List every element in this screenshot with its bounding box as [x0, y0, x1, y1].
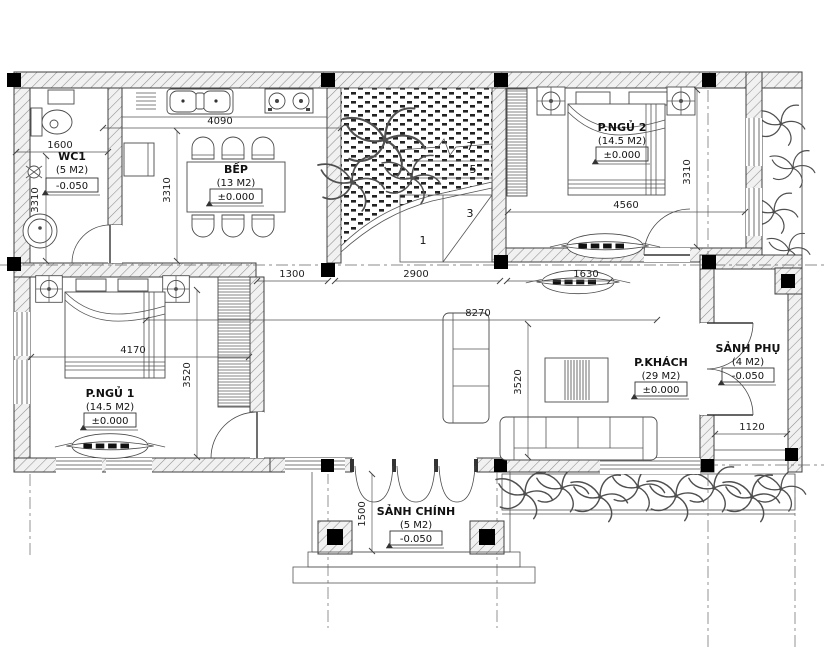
- dim-stairwell-width: 2900: [403, 269, 428, 280]
- pillow: [118, 279, 148, 291]
- nightstand-lamp-symbol: [36, 276, 63, 303]
- window-bedroom1-bottom-2: [106, 458, 152, 474]
- room-level: -0.050: [732, 371, 764, 382]
- side-porch-right-wall: [788, 269, 802, 472]
- living-room-furniture: [443, 270, 657, 460]
- side-porch-left-wall-upper: [700, 269, 714, 323]
- kitchen-sink-symbol: [167, 89, 233, 114]
- room-area: (13 M2): [217, 178, 256, 189]
- bedroom2-furniture: [507, 87, 695, 258]
- palm-symbol: [755, 469, 806, 511]
- palm-symbol: [496, 472, 553, 519]
- room-area: (14.5 M2): [598, 136, 646, 147]
- porch-column: [318, 521, 352, 554]
- window-bedroom1-bottom-1: [56, 458, 102, 474]
- window-living-bottom-left: [285, 458, 345, 474]
- wardrobe-symbol: [507, 89, 527, 196]
- nightstand-lamp-symbol: [163, 276, 190, 303]
- stair-number-5: 5: [470, 163, 477, 176]
- room-level: ±0.000: [91, 416, 128, 427]
- sofa-single-symbol: [443, 313, 489, 423]
- railing-side-porch-bottom: [714, 450, 788, 460]
- palm-symbol: [534, 467, 589, 512]
- stairwell: 1 3 5 7: [318, 88, 492, 262]
- bed-symbol: [65, 279, 165, 378]
- room-label-p-ngu-1: P.NGỦ 1 (14.5 M2) ±0.000: [80, 386, 138, 430]
- room-label-wc1: WC1 (5 M2) -0.050: [42, 150, 100, 195]
- ac-unit-symbol: [55, 434, 165, 459]
- fridge-symbol: [124, 143, 154, 176]
- window-bedroom2-right-2: [746, 188, 762, 236]
- bedroom2-right-wall: [746, 72, 762, 268]
- pillow: [576, 92, 610, 105]
- bedroom1-furniture: [36, 276, 250, 459]
- door-wc1: [72, 225, 122, 263]
- dim-bedroom2-entry: 1630: [573, 269, 598, 280]
- door-bedroom2: [644, 209, 690, 262]
- room-label-p-khach: P.KHÁCH (29 M2) ±0.000: [631, 356, 689, 399]
- drainboard-symbol: [136, 93, 156, 109]
- nightstand-lamp-symbol: [537, 87, 565, 115]
- room-level: ±0.000: [603, 150, 640, 161]
- room-area: (4 M2): [732, 357, 764, 368]
- wardrobe-symbol: [218, 277, 250, 407]
- room-name: P.NGỦ 1: [86, 386, 135, 400]
- door-bedroom1: [211, 412, 264, 458]
- stove-symbol: [265, 89, 313, 113]
- room-area: (5 M2): [56, 165, 88, 176]
- room-level: -0.050: [400, 534, 432, 545]
- room-label-sanh-phu: SẢNH PHỤ (4 M2) -0.050: [716, 341, 781, 385]
- room-name: SẢNH PHỤ: [716, 341, 781, 355]
- dim-wc-depth: 3310: [30, 187, 41, 212]
- room-name: SẢNH CHÍNH: [377, 504, 455, 518]
- wc-divider-wall: [108, 88, 122, 225]
- window-bedroom2-right-1: [746, 118, 762, 166]
- entry-step: [293, 567, 535, 583]
- exterior-wall-left: [14, 88, 30, 472]
- dim-bedroom1-depth: 3520: [182, 362, 193, 387]
- dim-kitchen-width: 4090: [207, 116, 232, 127]
- dim-hallway-width: 1300: [279, 269, 304, 280]
- floor-plan-page: 1 3 5 7: [0, 0, 824, 659]
- palm-symbol: [723, 475, 780, 522]
- bedroom1-right-wall: [250, 277, 264, 412]
- floor-plan-canvas: 1 3 5 7: [0, 0, 824, 659]
- porch-column: [470, 521, 504, 554]
- kitchen-stair-wall: [327, 88, 341, 263]
- dim-main-porch-depth: 1500: [357, 501, 368, 526]
- nightstand-lamp-symbol: [667, 87, 695, 115]
- room-level: -0.050: [56, 181, 88, 192]
- dim-living-depth: 3520: [513, 369, 524, 394]
- room-label-sanh-chinh: SẢNH CHÍNH (5 M2) -0.050: [377, 504, 455, 548]
- stair-bedroom2-wall: [492, 88, 506, 262]
- dim-kitchen-depth: 3310: [162, 177, 173, 202]
- exterior-wall-top: [14, 72, 802, 88]
- room-name: P.KHÁCH: [634, 356, 688, 369]
- room-area: (29 M2): [642, 371, 681, 382]
- room-area: (5 M2): [400, 520, 432, 531]
- pillow: [629, 92, 667, 105]
- stair-number-3: 3: [467, 207, 474, 220]
- coffee-table-symbol: [545, 358, 608, 402]
- sofa-long-symbol: [500, 417, 657, 460]
- palm-symbol: [770, 151, 815, 188]
- toilet-symbol: [31, 108, 72, 136]
- stair-number-7: 7: [467, 140, 474, 153]
- window-bedroom1-left-2: [14, 360, 30, 404]
- dim-bedroom1-width: 4170: [120, 345, 145, 356]
- room-level: ±0.000: [217, 192, 254, 203]
- palm-symbol: [571, 475, 628, 522]
- faucet-symbol: [26, 166, 42, 178]
- dim-bedroom2-depth: 3310: [682, 159, 693, 184]
- door-side-porch-double: [700, 323, 753, 415]
- window-bedroom1-left-1: [14, 312, 30, 356]
- dim-side-porch-width: 1120: [739, 422, 764, 433]
- room-level: ±0.000: [642, 385, 679, 396]
- shelf-symbol: [48, 90, 74, 104]
- room-area: (14.5 M2): [86, 402, 134, 413]
- bottom-garden-strip: [496, 466, 806, 522]
- stair-number-1: 1: [420, 234, 427, 247]
- room-name: BẾP: [224, 161, 248, 176]
- room-name: WC1: [58, 150, 86, 163]
- door-main-entrance-triple: [350, 458, 478, 502]
- washbasin-symbol: [23, 214, 57, 248]
- pillow: [76, 279, 106, 291]
- dim-bedroom2-width: 4560: [613, 200, 638, 211]
- dim-living-width: 8270: [465, 308, 490, 319]
- palm-symbol: [756, 105, 805, 145]
- room-name: P.NGỦ 2: [598, 120, 647, 134]
